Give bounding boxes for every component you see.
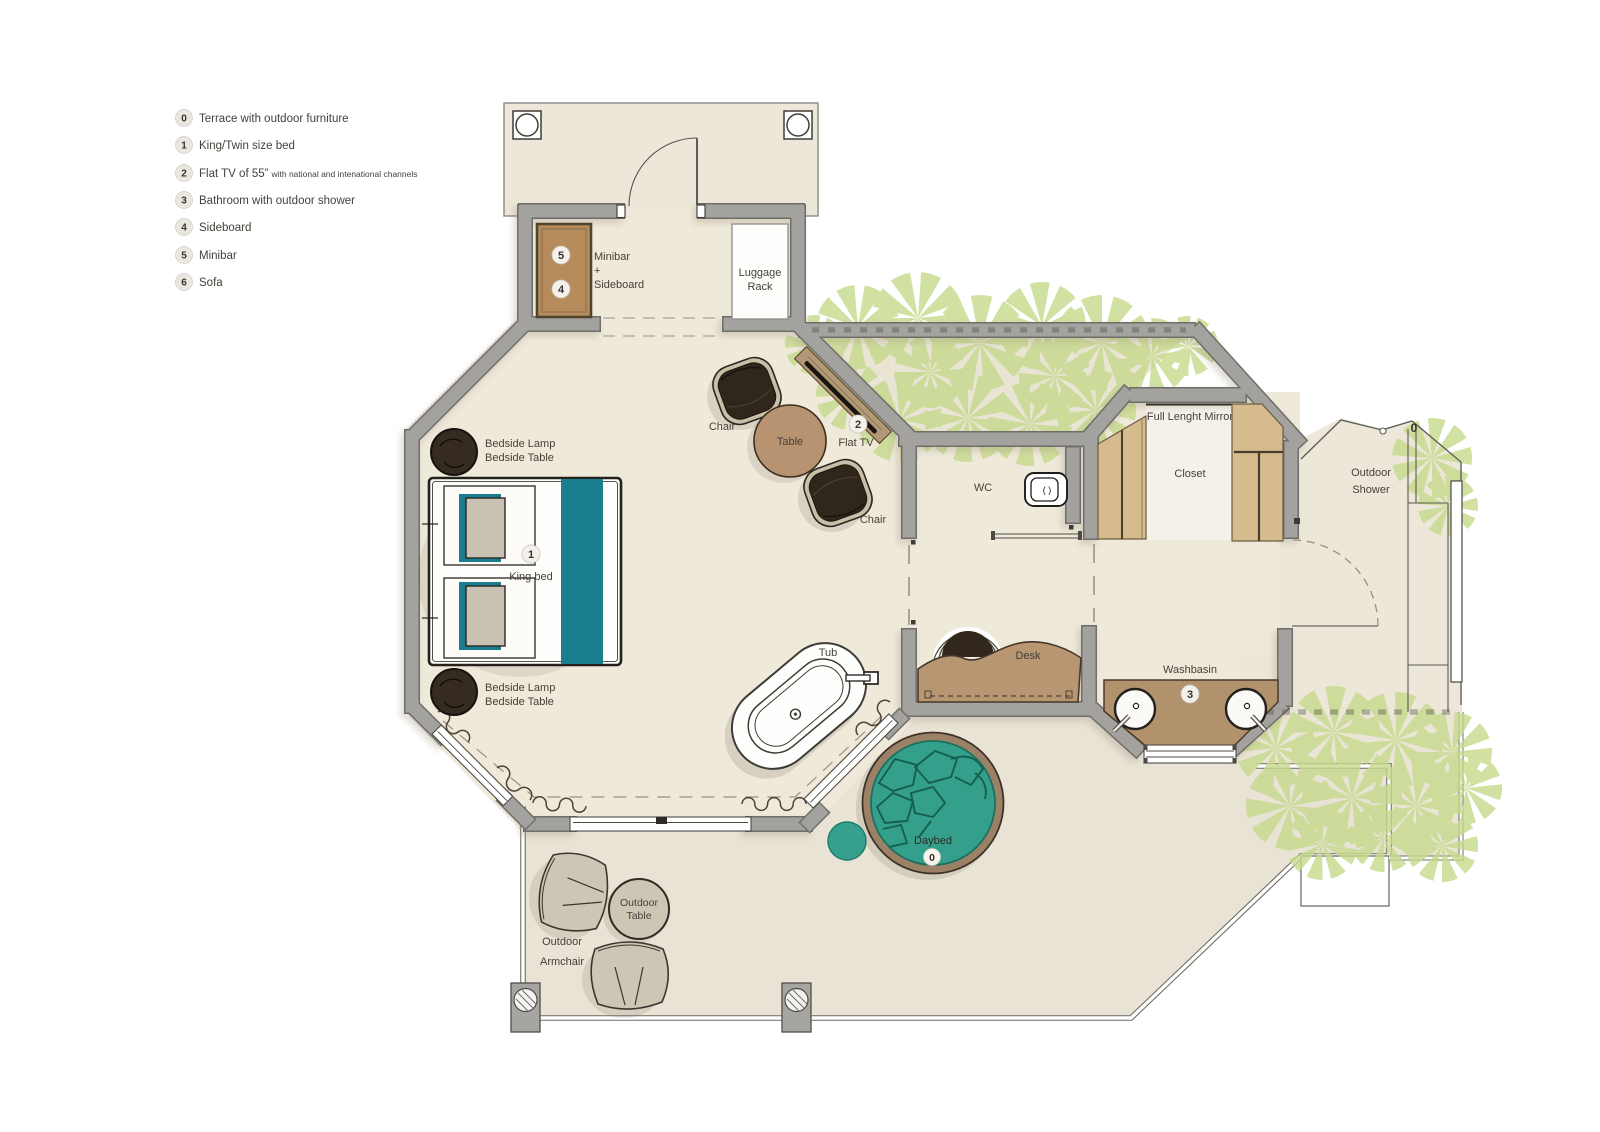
svg-text:Rack: Rack	[747, 281, 773, 293]
svg-text:+: +	[594, 265, 600, 277]
svg-text:Table: Table	[626, 910, 651, 922]
svg-text:Tub: Tub	[819, 647, 838, 659]
svg-text:Desk: Desk	[1015, 650, 1041, 662]
svg-text:Flat TV: Flat TV	[838, 437, 874, 449]
svg-text:Table: Table	[777, 436, 803, 448]
svg-text:Flat TV of 55”with national an: Flat TV of 55”with national and intenati…	[199, 168, 418, 180]
svg-text:0: 0	[181, 114, 187, 125]
svg-text:Bedside Table: Bedside Table	[485, 696, 554, 708]
svg-text:Armchair: Armchair	[540, 956, 584, 968]
svg-text:( ): ( )	[1043, 485, 1052, 495]
svg-text:0: 0	[929, 852, 935, 864]
svg-text:King/Twin size bed: King/Twin size bed	[199, 140, 295, 152]
svg-text:Luggage: Luggage	[739, 267, 782, 279]
svg-text:4: 4	[558, 284, 565, 296]
svg-text:Chair: Chair	[860, 514, 887, 526]
svg-text:WC: WC	[974, 482, 992, 494]
svg-text:Outdoor: Outdoor	[620, 897, 658, 909]
svg-text:Minibar: Minibar	[199, 250, 237, 262]
svg-text:Terrace with outdoor furniture: Terrace with outdoor furniture	[199, 113, 349, 125]
svg-text:Outdoor: Outdoor	[1351, 467, 1391, 479]
svg-text:5: 5	[558, 250, 564, 262]
svg-text:Chair: Chair	[709, 421, 736, 433]
svg-text:Sofa: Sofa	[199, 277, 223, 289]
svg-text:Shower: Shower	[1352, 484, 1390, 496]
svg-text:Daybed: Daybed	[914, 835, 952, 847]
svg-text:Bedside Lamp: Bedside Lamp	[485, 438, 555, 450]
svg-text:Sideboard: Sideboard	[199, 222, 251, 234]
svg-text:3: 3	[181, 196, 187, 207]
svg-text:2: 2	[181, 169, 187, 180]
svg-text:2: 2	[855, 419, 861, 431]
svg-text:King bed: King bed	[509, 571, 552, 583]
svg-text:3: 3	[1187, 689, 1193, 701]
svg-text:1: 1	[181, 141, 187, 152]
svg-text:Full Lenght Mirror: Full Lenght Mirror	[1147, 411, 1234, 423]
svg-text:Minibar: Minibar	[594, 251, 630, 263]
svg-text:6: 6	[181, 278, 187, 289]
svg-text:4: 4	[181, 223, 187, 234]
svg-text:Bathroom with outdoor shower: Bathroom with outdoor shower	[199, 195, 355, 207]
svg-text:Sideboard: Sideboard	[594, 279, 644, 291]
svg-text:Washbasin: Washbasin	[1163, 664, 1217, 676]
svg-text:Bedside Lamp: Bedside Lamp	[485, 682, 555, 694]
svg-text:Bedside Table: Bedside Table	[485, 452, 554, 464]
svg-text:0: 0	[1411, 421, 1418, 435]
svg-text:Outdoor: Outdoor	[542, 936, 582, 948]
svg-text:5: 5	[181, 251, 187, 262]
svg-text:1: 1	[528, 549, 534, 561]
svg-text:Closet: Closet	[1174, 468, 1205, 480]
